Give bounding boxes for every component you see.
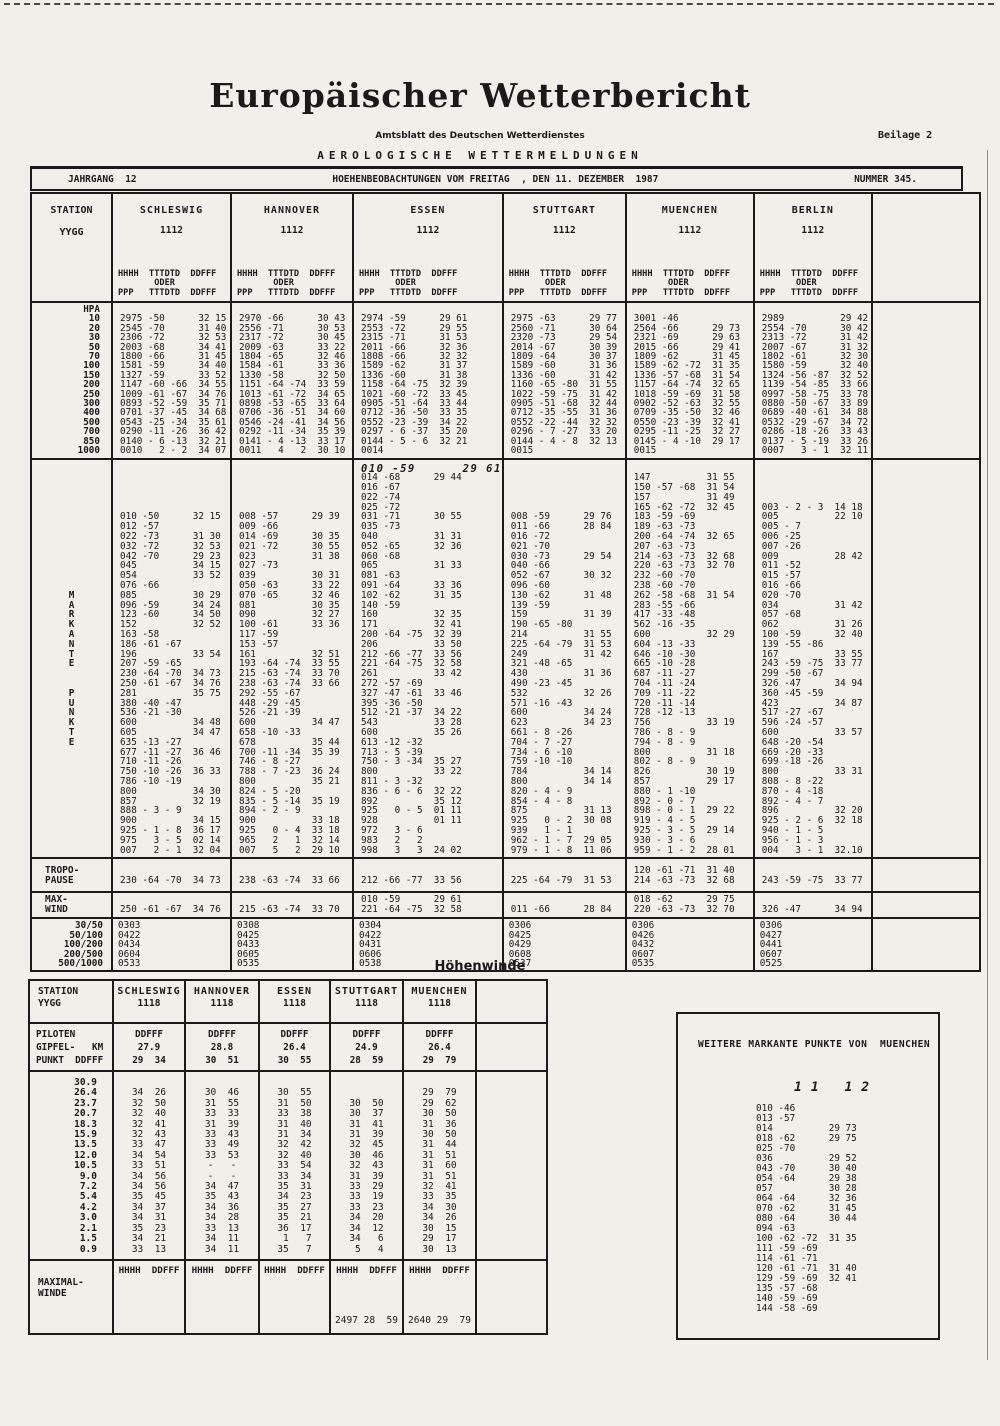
hw-winds-essen: 30 55 31 50 33 38 31 40 31 34 32 42 32 4… <box>260 1072 329 1259</box>
sig-line: 027 -73 <box>239 560 352 570</box>
sig-line: 710 -11 -26 <box>120 756 230 766</box>
sig-line: 214 31 55 <box>511 629 625 639</box>
sig-line: 070 -65 32 46 <box>239 590 352 600</box>
hw-station-time-muenchen: 1118 <box>404 998 475 1009</box>
sig-line: 009 -66 <box>239 521 352 531</box>
sig-line: 096 -59 34 24 <box>120 600 230 610</box>
sig-line: 786 -10 -19 <box>120 776 230 786</box>
sig-line: 096 -60 <box>511 580 625 590</box>
sig-line: 600 33 57 <box>762 727 871 737</box>
sig-line: 060 -68 <box>361 551 502 561</box>
sig-line: 005 22 10 <box>762 511 871 521</box>
hw-header-schleswig: SCHLESWIG1118 <box>113 980 185 1023</box>
sig-line: 517 -27 -67 <box>762 707 871 717</box>
sig-line: 206 33 50 <box>361 639 502 649</box>
hw-header-stuttgart: STUTTGART1118 <box>330 980 403 1023</box>
sig-line: 062 31 26 <box>762 619 871 629</box>
gipfel-wind: 28 59 <box>331 1054 402 1067</box>
sig-line: 102 -62 31 35 <box>361 590 502 600</box>
hw-station-time-schleswig: 1118 <box>114 998 184 1009</box>
hhhh-ddfff-head: HHHH DDFFF <box>186 1265 258 1276</box>
sig-line: 299 -50 -67 <box>762 668 871 678</box>
hw-station-time-essen: 1118 <box>260 998 329 1009</box>
sig-line: 032 -72 32 53 <box>120 541 230 551</box>
sig-line: 836 - 6 - 6 32 22 <box>361 786 502 796</box>
sig-line: 004 3 - 1 32.10 <box>762 845 871 855</box>
pressure-data-muenchen: 3001 -46 2564 -66 29 73 2321 -69 29 63 2… <box>627 303 753 458</box>
sig-line: 512 -21 -37 34 22 <box>361 707 502 717</box>
maximal-winde-label-line1: MAXIMAL- <box>38 1277 112 1288</box>
pressure-data-schleswig: 2975 -50 32 15 2545 -70 31 40 2306 -72 3… <box>113 303 230 458</box>
sig-line: 677 -11 -27 36 46 <box>120 747 230 757</box>
gipfel-wind: 29 34 <box>114 1054 184 1067</box>
sig-line: 720 -11 -14 <box>634 698 753 708</box>
sig-line: 292 -55 -67 <box>239 688 352 698</box>
maximal-wind-value: 2497 28 59 <box>331 1315 402 1326</box>
ddfff-head: DDFFF <box>260 1028 329 1041</box>
hw-winds-hannover: 30 46 31 55 33 33 31 39 33 43 33 49 33 5… <box>186 1072 258 1259</box>
hw-body-cell-hannover: 30 46 31 55 33 33 31 39 33 43 33 49 33 5… <box>185 1071 259 1260</box>
sig-line: 076 -66 <box>120 580 230 590</box>
sig-line: 919 - 4 - 5 <box>634 815 753 825</box>
sig-line: 153 -57 <box>239 639 352 649</box>
sig-line: 870 - 4 -18 <box>762 786 871 796</box>
sig-line: 081 -63 <box>361 570 502 580</box>
sig-cell-essen: 010 -59 29 61014 -68 29 44016 -67022 -74… <box>353 459 503 859</box>
tropopause-data-stuttgart: 225 -64 -79 31 53 <box>504 859 625 891</box>
sig-line: 665 -10 -28 <box>634 658 753 668</box>
sig-line: 892 35 12 <box>361 796 502 806</box>
maximal-cell-muenchen: HHHH DDFFF2640 29 79 <box>403 1260 476 1334</box>
station-name-hannover: HANNOVER <box>232 205 352 216</box>
maximal-winde-row: MAXIMAL- WINDE HHHH DDFFFHHHH DDFFFHHHH … <box>29 1260 547 1334</box>
station-header-hannover: HANNOVER1112HHHH TTTDTD DDFFF ODER PPP T… <box>231 193 353 302</box>
piloten-label-line1: PILOTEN <box>36 1028 112 1041</box>
sig-line: 054 33 52 <box>120 570 230 580</box>
sig-line: 221 -64 -75 32 58 <box>361 658 502 668</box>
sig-line <box>239 492 352 502</box>
sig-line: 011 -66 28 84 <box>511 521 625 531</box>
sig-line: 532 32 26 <box>511 688 625 698</box>
sig-line: 190 -65 -80 <box>511 619 625 629</box>
sig-line: 939 1 - 1 <box>511 825 625 835</box>
station-time-hannover: 1112 <box>232 225 352 236</box>
sig-line: 635 -13 -27 <box>120 737 230 747</box>
gipfel-km: 26.4 <box>260 1041 329 1054</box>
sig-line: 536 -21 -30 <box>120 707 230 717</box>
sig-line: 750 -10 -26 36 33 <box>120 766 230 776</box>
main-table-header-row: STATION YYGG SCHLESWIG1112HHHH TTTDTD DD… <box>31 193 980 302</box>
sig-line: 250 -61 -67 34 76 <box>120 678 230 688</box>
max-wind-data-stuttgart: 011 -66 28 84 <box>504 893 625 917</box>
sig-line: 704 -11 -24 <box>634 678 753 688</box>
sig-line: 896 32 20 <box>762 805 871 815</box>
pressure-data-berlin: 2989 29 42 2554 -70 30 42 2313 -72 31 42… <box>755 303 871 458</box>
sig-line <box>762 482 871 492</box>
sig-line: 321 -48 -65 <box>511 658 625 668</box>
sig-line: 658 -10 -33 <box>239 727 352 737</box>
beilage-label: Beilage 2 <box>878 130 932 141</box>
sig-line: 057 -68 <box>762 609 871 619</box>
sig-cell-muenchen: 147 31 55150 -57 -68 31 54157 31 49165 -… <box>626 459 754 859</box>
sig-line: 020 -70 <box>762 590 871 600</box>
sig-line <box>511 482 625 492</box>
weitere-data-lines: 010 -46 013 -57 014 29 73 018 -62 29 75 … <box>756 1104 938 1314</box>
empty-column <box>872 459 980 859</box>
pressure-data-stuttgart: 2975 -63 29 77 2560 -71 30 64 2320 -73 2… <box>504 303 625 458</box>
sig-line: 648 -20 -54 <box>762 737 871 747</box>
sig-line: 008 -59 29 76 <box>511 511 625 521</box>
sig-line: 215 -63 -74 33 70 <box>239 668 352 678</box>
markante-punkte-gutter: MARKANTEPUNKTE <box>31 459 112 859</box>
sig-line: 123 -60 34 50 <box>120 609 230 619</box>
sig-line: 012 -57 <box>120 521 230 531</box>
max-wind-cell-schleswig: 250 -61 -67 34 76 <box>112 892 231 918</box>
tropopause-cell-schleswig: 230 -64 -70 34 73 <box>112 858 231 892</box>
sig-line: 600 35 26 <box>361 727 502 737</box>
sig-line: 085 30 29 <box>120 590 230 600</box>
station-time-schleswig: 1112 <box>113 225 230 236</box>
pilot-cell-stuttgart: DDFFF24.928 59 <box>330 1023 403 1071</box>
sig-line: 892 - 0 - 7 <box>634 796 753 806</box>
sig-line: 022 -74 <box>361 492 502 502</box>
sig-line: 014 -69 30 35 <box>239 531 352 541</box>
sig-line: 091 -64 33 36 <box>361 580 502 590</box>
sig-line: 709 -11 -22 <box>634 688 753 698</box>
corner-cell: STATION YYGG <box>31 193 112 302</box>
sig-line: 571 -16 -43 <box>511 698 625 708</box>
sig-line: 196 33 54 <box>120 649 230 659</box>
station-name-essen: ESSEN <box>354 205 502 216</box>
sig-line: 661 - 8 -26 <box>511 727 625 737</box>
tropopause-cell-berlin: 243 -59 -75 33 77 <box>754 858 872 892</box>
sig-line: 857 32 19 <box>120 796 230 806</box>
sig-line: 925 0 - 2 30 08 <box>511 815 625 825</box>
hw-corner-cell: STATION YYGG <box>29 980 113 1023</box>
sig-line: 159 31 39 <box>511 609 625 619</box>
gipfel-wind: 29 79 <box>404 1054 475 1067</box>
sig-line: 150 -57 -68 31 54 <box>634 482 753 492</box>
max-wind-data-essen: 010 -59 29 61 221 -64 -75 32 58 <box>354 893 502 917</box>
sig-line: 700 -11 -34 35 39 <box>239 747 352 757</box>
max-wind-data-hannover: 215 -63 -74 33 70 <box>232 893 352 917</box>
pressure-cell-schleswig: 2975 -50 32 15 2545 -70 31 40 2306 -72 3… <box>112 302 231 459</box>
sig-line <box>511 502 625 512</box>
sig-line: 600 34 48 <box>120 717 230 727</box>
sig-line: 065 31 33 <box>361 560 502 570</box>
station-header-essen: ESSEN1112HHHH TTTDTD DDFFF ODER PPP TTTD… <box>353 193 503 302</box>
sig-line: 965 2 1 32 14 <box>239 835 352 845</box>
sig-line: 900 33 18 <box>239 815 352 825</box>
sig-line <box>634 463 753 473</box>
sig-line: 152 32 52 <box>120 619 230 629</box>
sig-line: 811 - 3 -32 <box>361 776 502 786</box>
hw-header-essen: ESSEN1118 <box>259 980 330 1023</box>
maximal-winde-label-cell: MAXIMAL- WINDE <box>29 1260 113 1334</box>
sig-line: 003 - 2 - 3 14 18 <box>762 502 871 512</box>
pilot-cell-hannover: DDFFF28.830 51 <box>185 1023 259 1071</box>
sig-line: 167 33 55 <box>762 649 871 659</box>
ddfff-head: DDFFF <box>331 1028 402 1041</box>
sig-line: 669 -20 -33 <box>762 747 871 757</box>
hw-body-cell-schleswig: 34 26 32 50 32 40 32 41 32 43 33 47 34 5… <box>113 1071 185 1260</box>
sig-line: 875 31 13 <box>511 805 625 815</box>
yygg-label: YYGG <box>32 227 111 238</box>
sig-line: 930 - 3 - 6 <box>634 835 753 845</box>
sig-line <box>120 482 230 492</box>
hhhh-ddfff-head: HHHH DDFFF <box>404 1265 475 1276</box>
column-head-berlin: HHHH TTTDTD DDFFF ODER PPP TTTDTD DDFFF <box>760 270 858 299</box>
sig-line: 281 35 75 <box>120 688 230 698</box>
sig-line: 183 -59 -69 <box>634 511 753 521</box>
hoehenwinde-body-row: 30.9 26.4 23.7 20.7 18.3 15.9 13.5 12.0 … <box>29 1071 547 1260</box>
pressure-levels: HPA 10 20 30 50 70 100 150 200 250 300 4… <box>32 303 111 458</box>
sig-line: 007 5 2 29 10 <box>239 845 352 855</box>
sig-line: 734 - 6 -10 <box>511 747 625 757</box>
sig-line <box>120 463 230 473</box>
sig-line: 784 34 14 <box>511 766 625 776</box>
sig-line: 163 -58 <box>120 629 230 639</box>
maximal-cell-stuttgart: HHHH DDFFF2497 28 59 <box>330 1260 403 1334</box>
altitude-labels-cell: 30.9 26.4 23.7 20.7 18.3 15.9 13.5 12.0 … <box>29 1071 113 1260</box>
hw-yygg-label: YYGG <box>38 998 112 1010</box>
tropopause-label-cell: TROPO- PAUSE <box>31 858 112 892</box>
sig-line: 207 -63 -73 <box>634 541 753 551</box>
sig-line: 925 0 - 5 01 11 <box>361 805 502 815</box>
piloten-label-line3: PUNKT DDFFF <box>36 1054 112 1067</box>
hw-winds-muenchen: 29 79 29 62 30 50 31 36 30 50 31 44 31 5… <box>404 1072 475 1259</box>
sig-line: 230 -64 -70 34 73 <box>120 668 230 678</box>
scanned-weather-bulletin: Europäischer Wetterbericht Amtsblatt des… <box>0 0 1000 1426</box>
sig-line: 249 31 42 <box>511 649 625 659</box>
hoehenwinde-title: Höhenwinde <box>0 959 960 974</box>
sig-line: 040 -66 <box>511 560 625 570</box>
sig-line <box>120 472 230 482</box>
sig-line: 021 -70 <box>511 541 625 551</box>
sig-line: 214 -63 -73 32 68 <box>634 551 753 561</box>
sig-line: 050 -63 33 22 <box>239 580 352 590</box>
sig-line: 892 - 4 - 7 <box>762 796 871 806</box>
pressure-cell-berlin: 2989 29 42 2554 -70 30 42 2313 -72 31 42… <box>754 302 872 459</box>
sig-line: 262 -58 -68 31 54 <box>634 590 753 600</box>
station-time-muenchen: 1112 <box>627 225 753 236</box>
sig-line: 052 -67 30 32 <box>511 570 625 580</box>
max-wind-data-muenchen: 018 -62 29 75 220 -63 -73 32 70 <box>627 893 753 917</box>
ddfff-head: DDFFF <box>186 1028 258 1041</box>
sig-line: 925 0 - 4 33 18 <box>239 825 352 835</box>
pressure-levels-label-cell: HPA 10 20 30 50 70 100 150 200 250 300 4… <box>31 302 112 459</box>
sig-line: 016 -67 <box>361 482 502 492</box>
sig-line: 543 33 28 <box>361 717 502 727</box>
hw-body-cell-stuttgart: 30 50 30 37 31 41 31 39 32 45 30 46 32 4… <box>330 1071 403 1260</box>
sig-line: 326 -47 34 94 <box>762 678 871 688</box>
hhhh-ddfff-head: HHHH DDFFF <box>114 1265 184 1276</box>
empty-column <box>476 1260 547 1334</box>
jahrgang-label: JAHRGANG 12 <box>68 174 137 185</box>
handwritten-sig-line: 010 -59 29 61 <box>361 463 502 473</box>
column-head-stuttgart: HHHH TTTDTD DDFFF ODER PPP TTTDTD DDFFF <box>509 270 607 299</box>
sig-line: 925 - 1 - 8 36 17 <box>120 825 230 835</box>
sig-line <box>511 492 625 502</box>
hw-station-name-muenchen: MUENCHEN <box>404 986 475 997</box>
sig-line: 117 -59 <box>239 629 352 639</box>
sig-line <box>762 463 871 473</box>
sig-line: 713 - 5 -39 <box>361 747 502 757</box>
sig-line: 030 -73 29 54 <box>511 551 625 561</box>
sig-line: 759 -10 -10 <box>511 756 625 766</box>
hoehenwinde-header-row: STATION YYGG SCHLESWIG1118HANNOVER1118ES… <box>29 980 547 1023</box>
tropopause-data-hannover: 238 -63 -74 33 66 <box>232 859 352 891</box>
pressure-cell-essen: 2974 -59 29 61 2553 -72 29 55 2315 -71 3… <box>353 302 503 459</box>
hw-station-name-hannover: HANNOVER <box>186 986 258 997</box>
max-wind-row: MAX- WIND 250 -61 -67 34 76 215 -63 -74 … <box>31 892 980 918</box>
sig-line: 750 - 3 -34 35 27 <box>361 756 502 766</box>
tropopause-cell-muenchen: 120 -61 -71 31 40 214 -63 -73 32 68 <box>626 858 754 892</box>
hhhh-ddfff-head: HHHH DDFFF <box>331 1265 402 1276</box>
sig-line <box>239 482 352 492</box>
sig-line: 646 -10 -30 <box>634 649 753 659</box>
tropopause-cell-stuttgart: 225 -64 -79 31 53 <box>503 858 626 892</box>
column-head-essen: HHHH TTTDTD DDFFF ODER PPP TTTDTD DDFFF <box>359 270 457 299</box>
sig-cell-berlin: 003 - 2 - 3 14 18005 22 10005 - 7006 -25… <box>754 459 872 859</box>
sig-line: 022 -73 31 30 <box>120 531 230 541</box>
hw-station-name-essen: ESSEN <box>260 986 329 997</box>
sig-line: 900 34 15 <box>120 815 230 825</box>
sig-line: 380 -40 -47 <box>120 698 230 708</box>
max-wind-cell-hannover: 215 -63 -74 33 70 <box>231 892 353 918</box>
station-header-berlin: BERLIN1112HHHH TTTDTD DDFFF ODER PPP TTT… <box>754 193 872 302</box>
sig-line: 100 -61 33 36 <box>239 619 352 629</box>
sig-line: 395 -36 -50 <box>361 698 502 708</box>
piloten-label-line2: GIPFEL- KM <box>36 1041 112 1054</box>
sig-line: 025 -72 <box>361 502 502 512</box>
sig-line: 786 - 8 - 9 <box>634 727 753 737</box>
sig-line: 417 -33 -48 <box>634 609 753 619</box>
hw-body-cell-essen: 30 55 31 50 33 38 31 40 31 34 32 42 32 4… <box>259 1071 330 1260</box>
sig-line: 423 34 87 <box>762 698 871 708</box>
sig-line: 212 -66 -77 33 56 <box>361 649 502 659</box>
weitere-box-title: WEITERE MARKANTE PUNKTE VON MUENCHEN <box>698 1039 938 1050</box>
sig-line: 972 3 - 6 <box>361 825 502 835</box>
station-name-berlin: BERLIN <box>755 205 871 216</box>
pressure-cell-muenchen: 3001 -46 2564 -66 29 73 2321 -69 29 63 2… <box>626 302 754 459</box>
tropopause-row: TROPO- PAUSE 230 -64 -70 34 73 238 -63 -… <box>31 858 980 892</box>
sig-line: 139 -59 <box>511 600 625 610</box>
hw-body-cell-muenchen: 29 79 29 62 30 50 31 36 30 50 31 44 31 5… <box>403 1071 476 1260</box>
sig-line: 756 33 19 <box>634 717 753 727</box>
sig-line: 160 32 35 <box>361 609 502 619</box>
sig-line: 596 -24 -57 <box>762 717 871 727</box>
sig-line <box>239 472 352 482</box>
issue-line: HOEHENBEOBACHTUNGEN VOM FREITAG , DEN 11… <box>137 174 854 185</box>
sig-line: 802 - 8 - 9 <box>634 756 753 766</box>
sig-line: 034 31 42 <box>762 600 871 610</box>
gipfel-km: 24.9 <box>331 1041 402 1054</box>
piloten-row: PILOTEN GIPFEL- KM PUNKT DDFFF DDFFF27.9… <box>29 1023 547 1071</box>
hw-winds-schleswig: 34 26 32 50 32 40 32 41 32 43 33 47 34 5… <box>114 1072 184 1259</box>
sig-line: 081 30 35 <box>239 600 352 610</box>
sig-line: 962 - 1 - 7 29 05 <box>511 835 625 845</box>
sig-cell-stuttgart: 008 -59 29 76011 -66 28 84016 -72021 -70… <box>503 459 626 859</box>
tropopause-data-muenchen: 120 -61 -71 31 40 214 -63 -73 32 68 <box>627 859 753 891</box>
empty-column <box>872 302 980 459</box>
sig-line: 007 -26 <box>762 541 871 551</box>
pilot-cell-schleswig: DDFFF27.929 34 <box>113 1023 185 1071</box>
sig-line: 800 33 31 <box>762 766 871 776</box>
empty-column <box>476 980 547 1023</box>
sig-line: 800 31 18 <box>634 747 753 757</box>
column-head-muenchen: HHHH TTTDTD DDFFF ODER PPP TTTDTD DDFFF <box>632 270 730 299</box>
sig-line: 925 - 2 - 6 32 18 <box>762 815 871 825</box>
sig-line: 052 -65 32 36 <box>361 541 502 551</box>
sig-line <box>511 463 625 473</box>
max-wind-label-line2: WIND <box>45 905 111 915</box>
sig-line: 600 32 29 <box>634 629 753 639</box>
sig-line: 100 -59 32 40 <box>762 629 871 639</box>
sig-line: 015 -57 <box>762 570 871 580</box>
sig-line: 826 30 19 <box>634 766 753 776</box>
sig-line: 959 - 1 - 2 28 01 <box>634 845 753 855</box>
sig-line: 699 -18 -26 <box>762 756 871 766</box>
station-name-schleswig: SCHLESWIG <box>113 205 230 216</box>
sig-line: 200 -64 -75 32 39 <box>361 629 502 639</box>
sig-line: 042 -70 29 23 <box>120 551 230 561</box>
station-header-schleswig: SCHLESWIG1112HHHH TTTDTD DDFFF ODER PPP … <box>112 193 231 302</box>
sig-line: 238 -60 -70 <box>634 580 753 590</box>
sig-line: 147 31 55 <box>634 472 753 482</box>
hw-header-hannover: HANNOVER1118 <box>185 980 259 1023</box>
sig-line: 272 -57 -69 <box>361 678 502 688</box>
station-header-stuttgart: STUTTGART1112HHHH TTTDTD DDFFF ODER PPP … <box>503 193 626 302</box>
maximal-cell-schleswig: HHHH DDFFF <box>113 1260 185 1334</box>
hw-station-label: STATION <box>38 986 112 998</box>
gipfel-km: 27.9 <box>114 1041 184 1054</box>
sig-line: 009 28 42 <box>762 551 871 561</box>
sig-line: 678 35 44 <box>239 737 352 747</box>
sig-line: 045 34 15 <box>120 560 230 570</box>
maximal-cell-essen: HHHH DDFFF <box>259 1260 330 1334</box>
max-wind-data-berlin: 326 -47 34 94 <box>755 893 871 917</box>
piloten-label-cell: PILOTEN GIPFEL- KM PUNKT DDFFF <box>29 1023 113 1071</box>
sig-line <box>239 502 352 512</box>
sig-line: 956 - 1 - 3 <box>762 835 871 845</box>
sig-line: 006 -25 <box>762 531 871 541</box>
hw-station-name-schleswig: SCHLESWIG <box>114 986 184 997</box>
station-name-muenchen: MUENCHEN <box>627 205 753 216</box>
sig-line: 604 -13 -33 <box>634 639 753 649</box>
tropopause-cell-hannover: 238 -63 -74 33 66 <box>231 858 353 892</box>
sig-cell-schleswig: 010 -50 32 15012 -57022 -73 31 30032 -72… <box>112 459 231 859</box>
sig-line: 998 3 3 24 02 <box>361 845 502 855</box>
pressure-data-essen: 2974 -59 29 61 2553 -72 29 55 2315 -71 3… <box>354 303 502 458</box>
weitere-markante-punkte-box: WEITERE MARKANTE PUNKTE VON MUENCHEN 11 … <box>676 1012 940 1340</box>
column-head-schleswig: HHHH TTTDTD DDFFF ODER PPP TTTDTD DDFFF <box>118 270 216 299</box>
handwritten-column-numbers: 11 12 <box>794 1080 938 1095</box>
hhhh-ddfff-head: HHHH DDFFF <box>260 1265 329 1276</box>
sig-line: 704 - 7 -27 <box>511 737 625 747</box>
hoehenwinde-table: STATION YYGG SCHLESWIG1118HANNOVER1118ES… <box>28 979 548 1335</box>
station-time-berlin: 1112 <box>755 225 871 236</box>
maximal-winde-label-line2: WINDE <box>38 1288 112 1299</box>
sig-cell-hannover: 008 -57 29 39009 -66014 -69 30 35021 -72… <box>231 459 353 859</box>
document-title: Europäischer Wetterbericht <box>0 76 960 115</box>
sig-line: 283 -55 -66 <box>634 600 753 610</box>
sig-line: 687 -11 -27 <box>634 668 753 678</box>
sig-line: 186 -61 -67 <box>120 639 230 649</box>
sig-line: 023 31 38 <box>239 551 352 561</box>
sig-line: 161 32 51 <box>239 649 352 659</box>
tropopause-data-berlin: 243 -59 -75 33 77 <box>755 859 871 891</box>
